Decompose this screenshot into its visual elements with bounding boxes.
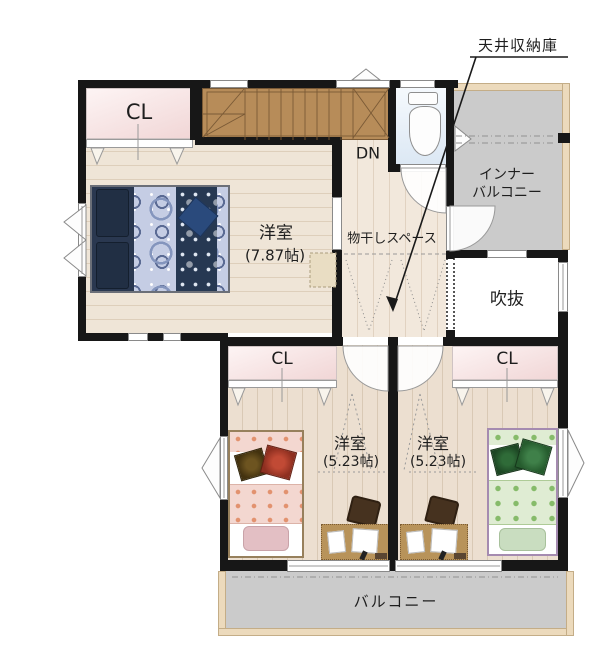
attic-storage-dashed-box [310,253,446,331]
balcony-label: バルコニー [354,591,439,612]
inner-balcony-label-line1: インナー [479,164,535,184]
bedroom-left-size: (5.23帖) [323,451,379,471]
inner-balcony-label-line2: バルコニー [472,182,542,202]
void-label: 吹抜 [490,285,524,310]
stairs-down-label: DN [356,144,380,163]
main-bedroom-size: (7.87帖) [245,245,305,266]
ceiling-storage-callout-label: 天井収納庫 [478,35,558,56]
stairs-lines [202,88,389,140]
closet-right-label: CL [496,349,517,369]
drying-space-label: 物干しスペース [347,228,436,247]
bedroom-right-size: (5.23帖) [410,451,466,471]
floor-plan: 天井収納庫 CL DN 洋室 (7.87帖) 物干しスペース インナー バルコニ… [0,0,606,652]
closet-top-label: CL [126,100,152,124]
linework-overlay [0,0,606,652]
main-bedroom-name: 洋室 [259,219,293,244]
closet-left-label: CL [271,349,292,369]
